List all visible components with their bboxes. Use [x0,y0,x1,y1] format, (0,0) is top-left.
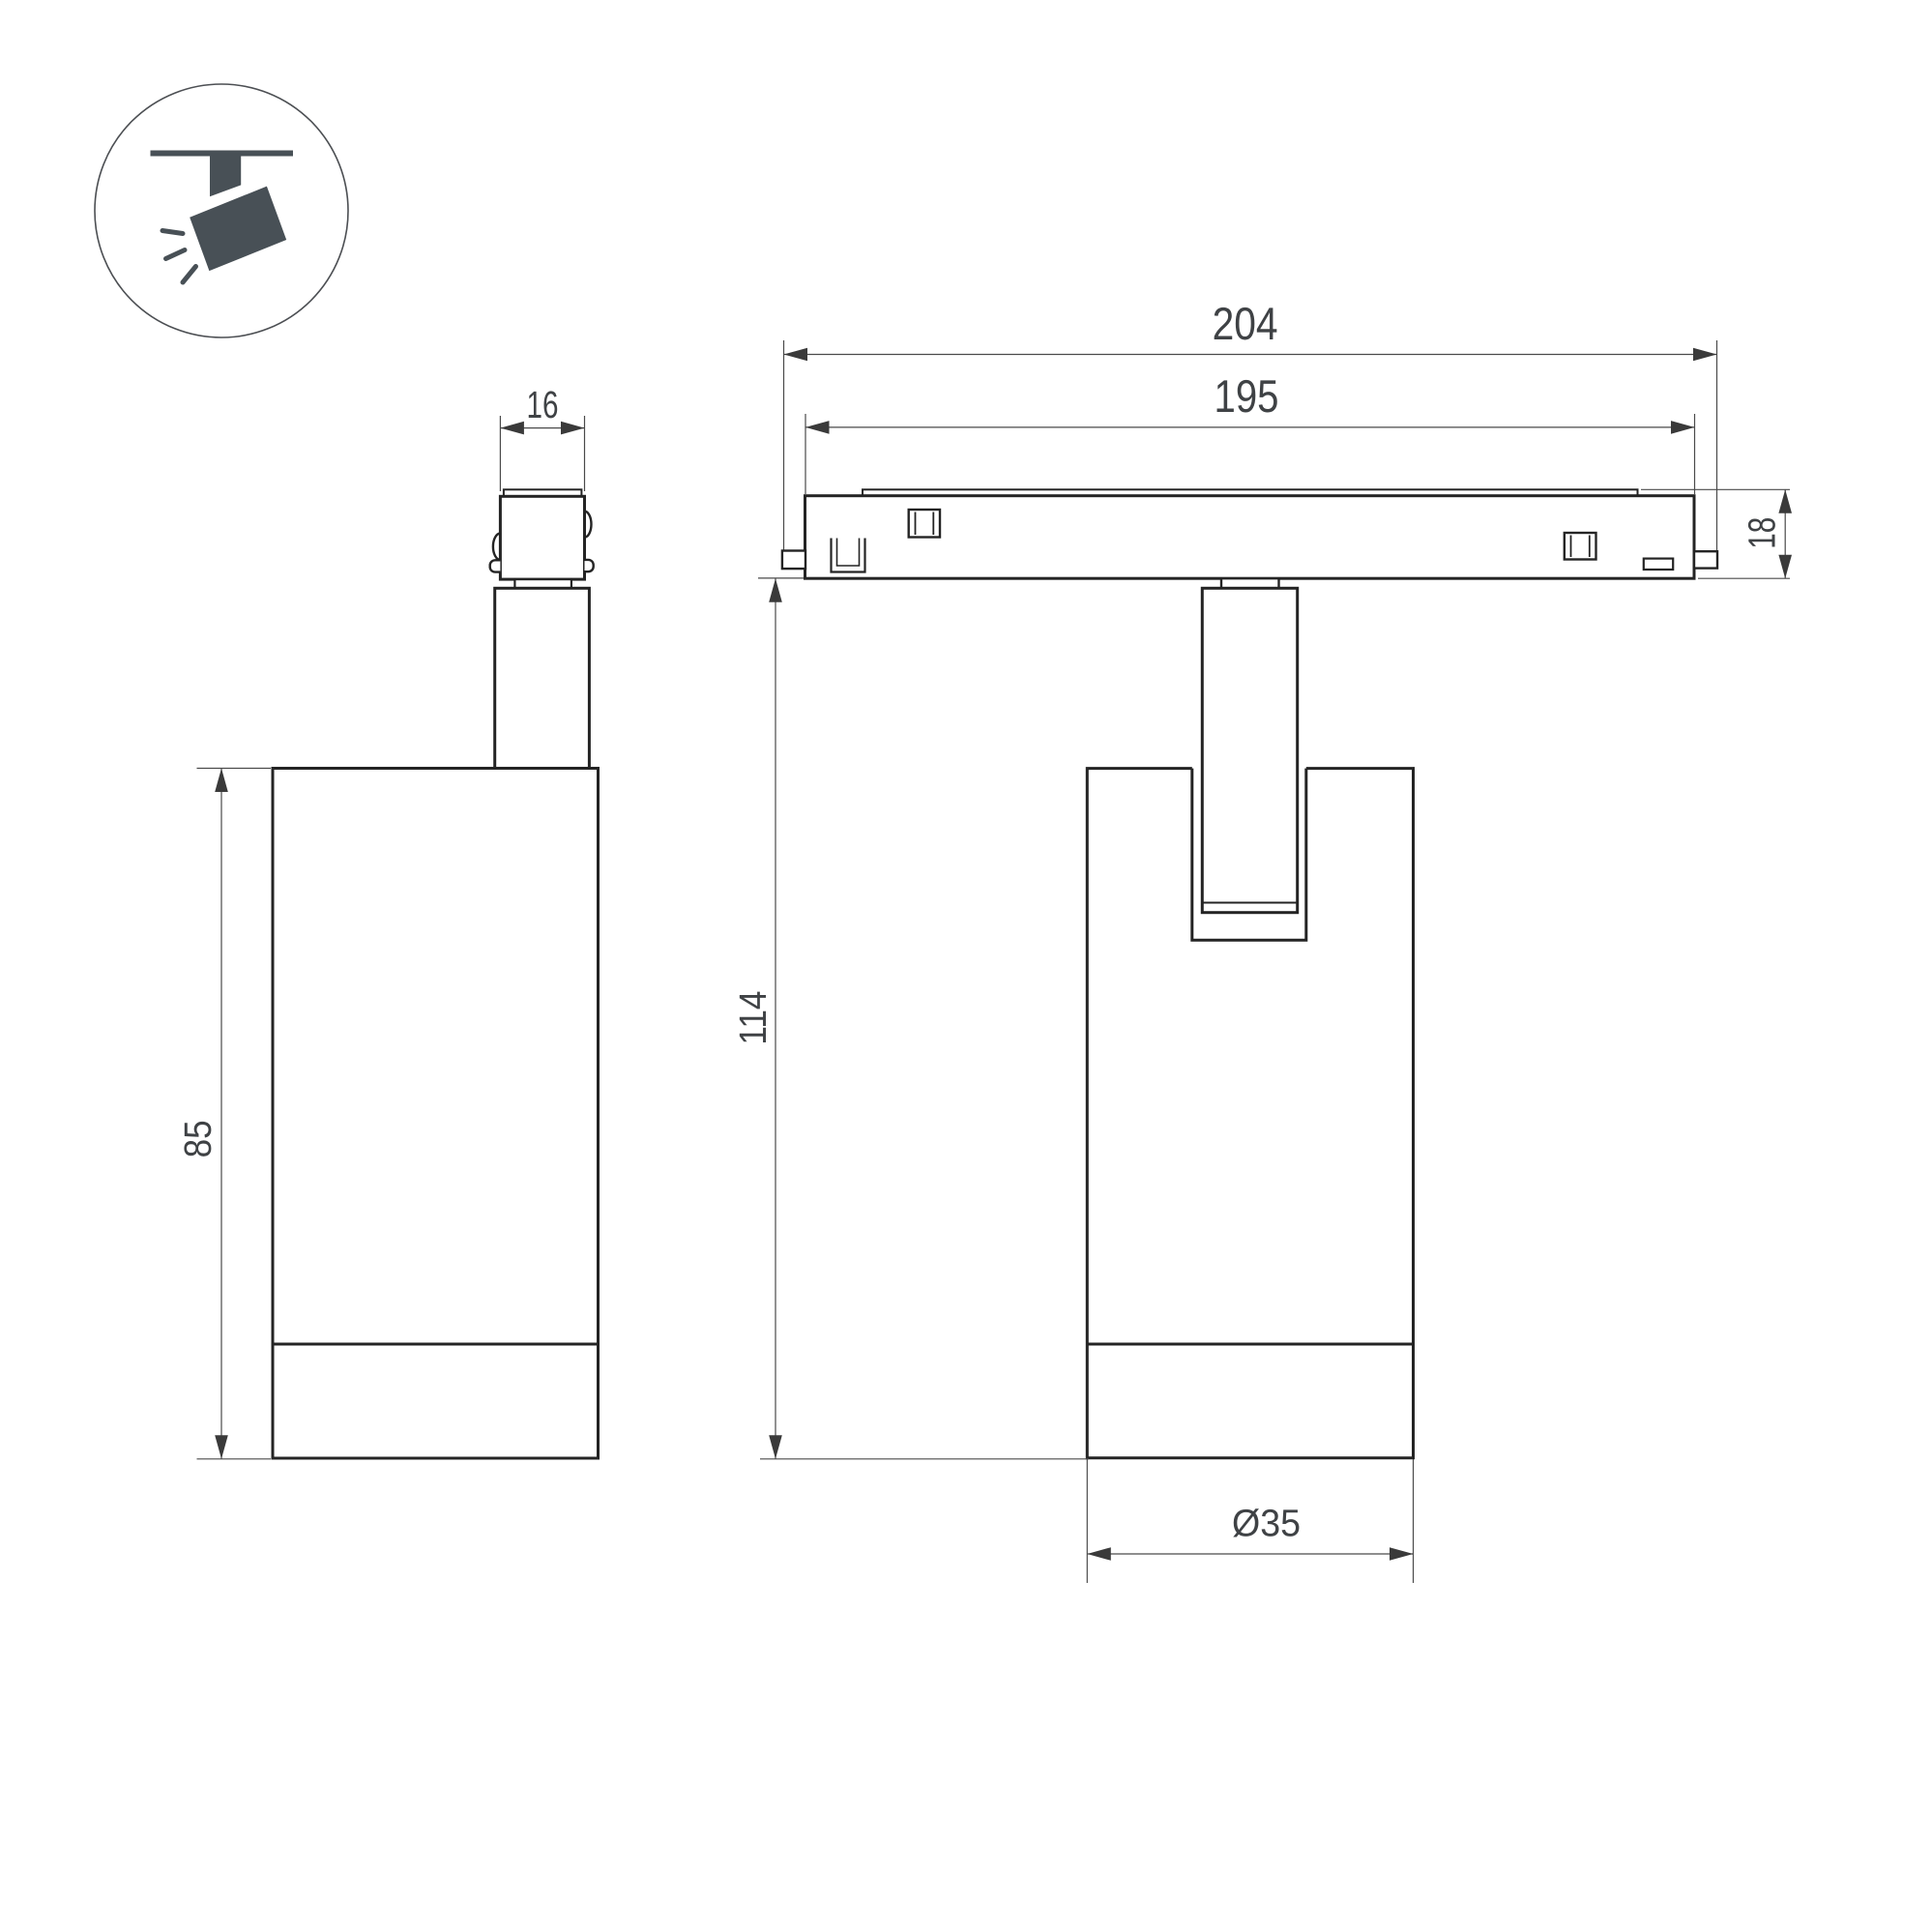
svg-text:16: 16 [527,384,559,426]
svg-text:85: 85 [177,1120,220,1157]
svg-text:18: 18 [1742,517,1784,549]
svg-text:114: 114 [732,991,775,1045]
svg-text:195: 195 [1215,371,1279,423]
svg-text:204: 204 [1213,299,1278,350]
svg-text:Ø35: Ø35 [1232,1503,1301,1545]
